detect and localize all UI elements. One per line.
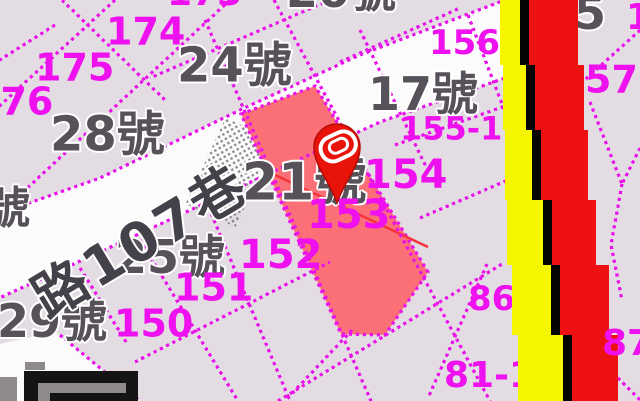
- corner-logo-block: [50, 393, 138, 401]
- parcel-number-label: 15: [626, 0, 640, 38]
- parcel-number-label: 176: [0, 79, 53, 123]
- corner-logo-block: [0, 377, 17, 401]
- house-number-label: 20號: [286, 0, 396, 18]
- house-number-label: 5: [574, 0, 606, 40]
- map-canvas[interactable]: 20號24號28號17號21號25號29號號517317417517615615…: [0, 0, 640, 401]
- corner-logo-block: [25, 362, 45, 370]
- parcel-number-label: 155-1: [400, 110, 502, 148]
- cadastral-map[interactable]: 20號24號28號17號21號25號29號號517317417517615615…: [0, 0, 640, 401]
- parcel-number-label: 156: [429, 23, 500, 63]
- house-number-label: 24號: [177, 37, 292, 93]
- parcel-number-label: 86: [468, 279, 515, 319]
- parcel-number-label: 87: [602, 323, 640, 364]
- parcel-number-label: 57: [585, 57, 638, 101]
- house-number-label: 號: [0, 183, 30, 234]
- parcel-number-label: 174: [106, 9, 185, 53]
- parcel-number-label: 150: [114, 301, 193, 345]
- house-number-label: 28號: [50, 106, 165, 162]
